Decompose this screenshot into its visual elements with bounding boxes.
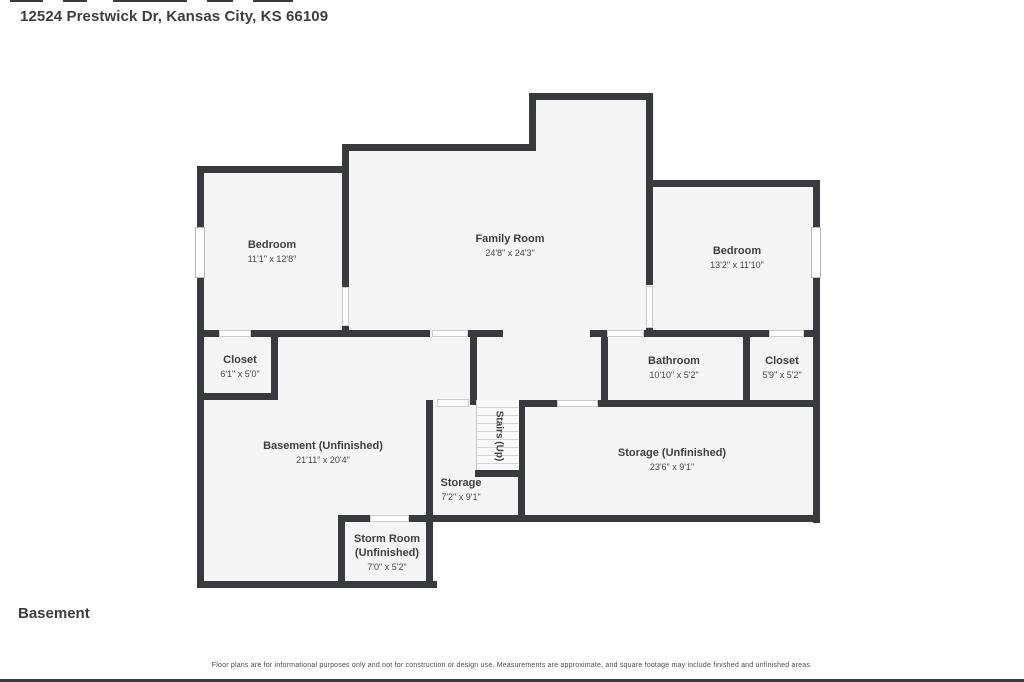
room-label-closet-right: Closet 5'9" x 5'2" (762, 355, 801, 381)
room-label-basement: Basement (Unfinished) 21'11" x 20'4" (263, 440, 383, 466)
door-opening (370, 515, 409, 522)
top-crop-artifact (63, 0, 87, 2)
wall-segment (470, 330, 477, 405)
door-opening (342, 287, 349, 326)
wall-segment (197, 393, 278, 400)
room-label-storage-unfinished: Storage (Unfinished) 23'6" x 9'1" (618, 447, 726, 473)
room-dimensions: 24'8" x 24'3" (475, 247, 544, 260)
room-dimensions: 6'1" x 5'0" (220, 368, 259, 381)
top-crop-artifact (113, 0, 187, 2)
room-dimensions: 13'2" x 11'10" (710, 259, 764, 272)
room-dimensions: 7'0" x 5'2" (340, 560, 434, 573)
door-opening (437, 399, 469, 407)
wall-segment (197, 581, 437, 588)
door-opening (646, 286, 653, 328)
door-opening (557, 400, 598, 407)
wall-segment (408, 515, 820, 522)
room-label-stairs: Stairs (Up) (494, 411, 505, 462)
top-crop-artifact (253, 0, 293, 2)
room-fill (532, 96, 655, 147)
wall-segment (197, 166, 349, 173)
room-dimensions: 5'9" x 5'2" (762, 369, 801, 382)
door-opening (219, 330, 251, 337)
room-name: Bathroom (648, 355, 700, 369)
wall-segment (342, 144, 349, 287)
room-name: Family Room (475, 233, 544, 247)
room-name: Storm Room (Unfinished) (340, 533, 434, 561)
room-name: Storage (441, 477, 482, 491)
wall-segment (597, 400, 820, 407)
room-label-bathroom: Bathroom 10'10" x 5'2" (648, 355, 700, 381)
room-dimensions: 7'2" x 9'1" (441, 491, 482, 504)
wall-segment (646, 93, 653, 285)
wall-segment (646, 327, 653, 337)
top-crop-artifact (10, 0, 43, 2)
wall-segment (529, 93, 536, 151)
wall-segment (646, 180, 820, 187)
room-label-bedroom-right: Bedroom 13'2" x 11'10" (710, 245, 764, 271)
room-name: Closet (220, 354, 259, 368)
room-name: Bedroom (710, 245, 764, 259)
wall-segment (342, 144, 536, 151)
wall-segment (518, 400, 525, 522)
floor-label: Basement (18, 605, 90, 622)
wall-segment (643, 330, 770, 337)
room-dimensions: 10'10" x 5'2" (648, 369, 700, 382)
door-opening (432, 330, 468, 337)
window (195, 227, 205, 278)
room-label-closet-left: Closet 6'1" x 5'0" (220, 354, 259, 380)
page-title: 12524 Prestwick Dr, Kansas City, KS 6610… (20, 8, 328, 25)
room-name: Storage (Unfinished) (618, 447, 726, 461)
door-opening (769, 330, 804, 337)
room-dimensions: 21'11" x 20'4" (263, 454, 383, 467)
room-label-family-room: Family Room 24'8" x 24'3" (475, 233, 544, 259)
wall-segment (342, 325, 349, 337)
room-dimensions: 11'1" x 12'8" (248, 253, 297, 266)
wall-segment (271, 330, 278, 400)
window (811, 227, 821, 278)
room-fill (200, 333, 820, 400)
wall-segment (743, 330, 750, 407)
disclaimer: Floor plans are for informational purpos… (0, 662, 1024, 669)
room-label-storage: Storage 7'2" x 9'1" (441, 477, 482, 503)
room-name: Bedroom (248, 239, 297, 253)
room-label-storm-room: Storm Room (Unfinished) 7'0" x 5'2" (340, 533, 434, 573)
room-name: Basement (Unfinished) (263, 440, 383, 454)
wall-segment (601, 330, 608, 407)
room-name: Closet (762, 355, 801, 369)
room-label-bedroom-left: Bedroom 11'1" x 12'8" (248, 239, 297, 265)
door-opening (607, 330, 644, 337)
room-dimensions: 23'6" x 9'1" (618, 461, 726, 474)
wall-segment (529, 93, 653, 100)
top-crop-artifact (207, 0, 233, 2)
